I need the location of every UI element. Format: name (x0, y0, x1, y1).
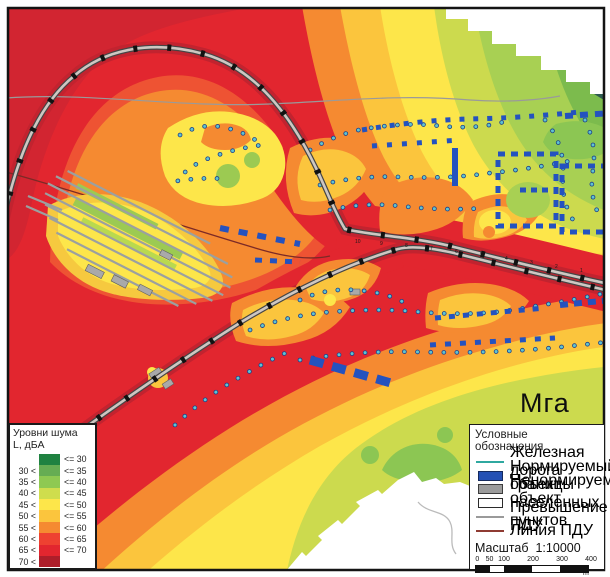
railway-km-label: 6 (455, 249, 458, 255)
noise-color-swatch (39, 454, 60, 465)
noise-color-swatch (39, 533, 60, 544)
noise-range-upper: <= 50 (60, 500, 87, 510)
settlement-boundary-icon (475, 498, 505, 508)
noise-legend-row: 70 < (13, 556, 92, 567)
symbols-legend: Условные обозначения Железная дорогаНорм… (469, 424, 605, 570)
railway-line-icon (475, 461, 505, 464)
noise-color-swatch (39, 499, 60, 510)
railway-km-label: 3 (530, 260, 533, 266)
noise-range-upper: <= 30 (60, 454, 87, 464)
scalebar-segment (504, 566, 532, 572)
scalebar-tick: 200 (527, 556, 539, 563)
scalebar: 050100200300400 m (475, 556, 591, 576)
railway-km-label: 9 (380, 241, 383, 247)
scale-section: Масштаб1:10000 050100200300400 m (475, 541, 599, 576)
noise-legend-row: 45 <<= 50 (13, 499, 92, 510)
noise-legend-row: 50 <<= 55 (13, 510, 92, 521)
scalebar-tick: 100 (498, 556, 510, 563)
symbols-legend-label: Линия ПДУ (510, 522, 593, 540)
exceedance-line-icon (475, 516, 505, 519)
scalebar-tick: 400 (585, 556, 597, 563)
green-patch (437, 427, 453, 443)
railway-km-label: 2 (555, 264, 558, 270)
noise-range-lower: 35 < (13, 477, 39, 487)
scalebar-ticks: 050100200300400 (475, 556, 591, 564)
noise-range-upper: <= 65 (60, 534, 87, 544)
noise-color-swatch (39, 476, 60, 487)
green-patch (361, 446, 379, 464)
normalized-object-icon (475, 471, 505, 481)
noise-legend-row: 35 <<= 40 (13, 476, 92, 487)
noise-legend-row: 30 <<= 35 (13, 465, 92, 476)
noise-legend-row: 65 <<= 70 (13, 545, 92, 556)
noise-color-swatch (39, 465, 60, 476)
railway-km-label: 4 (505, 256, 508, 262)
scalebar-bar (475, 565, 589, 573)
town-label: Мга (520, 388, 570, 419)
railway-km-label: 10 (355, 239, 361, 245)
railway-km-label: 8 (405, 243, 408, 249)
noise-range-lower: 65 < (13, 545, 39, 555)
noise-range-lower: 30 < (13, 466, 39, 476)
scalebar-segment (490, 566, 504, 572)
noise-legend-title-line2: L, дБА (13, 440, 92, 452)
noise-legend-title-line1: Уровни шума (13, 428, 92, 440)
noise-color-swatch (39, 522, 60, 533)
noise-range-upper: <= 60 (60, 523, 87, 533)
scalebar-segment (476, 566, 490, 572)
noise-legend-title: Уровни шума L, дБА (13, 428, 92, 452)
noise-map-page: { "map": { "town_label": "Мга", "km_labe… (0, 0, 610, 576)
scalebar-tick: 0 (475, 556, 479, 563)
noise-color-swatch (39, 545, 60, 556)
noise-legend-rows: <= 3030 <<= 3535 <<= 4040 <<= 4545 <<= 5… (13, 454, 92, 568)
noise-range-lower: 70 < (13, 557, 39, 567)
railway-km-label: 7 (430, 246, 433, 252)
nonnormalized-object-icon (475, 484, 505, 494)
noise-range-upper: <= 70 (60, 545, 87, 555)
noise-legend-row: 55 <<= 60 (13, 522, 92, 533)
noise-legend-row: 40 <<= 45 (13, 488, 92, 499)
noise-range-lower: 45 < (13, 500, 39, 510)
scale-label: Масштаб1:10000 (475, 541, 599, 555)
noise-legend-row: 60 <<= 65 (13, 533, 92, 544)
noise-range-upper: <= 35 (60, 466, 87, 476)
noise-legend-row: <= 30 (13, 454, 92, 465)
noise-range-upper: <= 40 (60, 477, 87, 487)
symbols-legend-items: Железная дорогаНормируемый объектНенорми… (475, 455, 599, 538)
noise-legend: Уровни шума L, дБА <= 3030 <<= 3535 <<= … (8, 423, 97, 570)
railway-km-label: 1 (580, 268, 583, 274)
scalebar-segment (532, 566, 560, 572)
noise-range-lower: 40 < (13, 488, 39, 498)
noise-range-lower: 60 < (13, 534, 39, 544)
scalebar-tick: 300 (556, 556, 568, 563)
scalebar-tick: 50 (486, 556, 494, 563)
scale-word: Масштаб (475, 541, 528, 555)
mpl-line-icon (475, 530, 505, 533)
scale-ratio: 1:10000 (535, 541, 580, 555)
noise-range-upper: <= 45 (60, 488, 87, 498)
railway-km-label: 5 (480, 252, 483, 258)
symbols-legend-item: Линия ПДУ (475, 524, 599, 538)
noise-color-swatch (39, 488, 60, 499)
noise-color-swatch (39, 510, 60, 521)
noise-color-swatch (39, 556, 60, 567)
noise-range-upper: <= 55 (60, 511, 87, 521)
noise-range-lower: 55 < (13, 523, 39, 533)
noise-range-lower: 50 < (13, 511, 39, 521)
